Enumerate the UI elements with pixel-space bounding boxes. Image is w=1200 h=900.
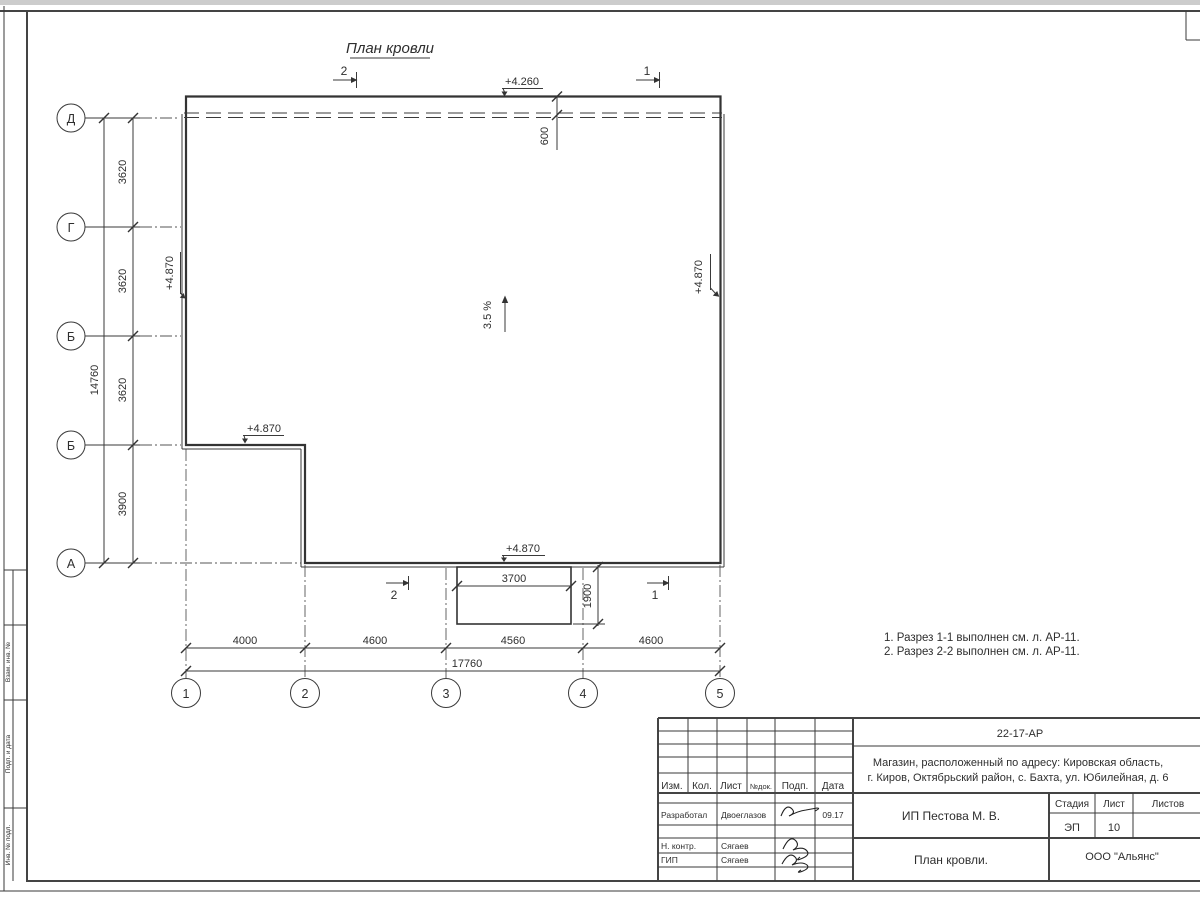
dims-bottom: 4000 4600 4560 4600 17760: [181, 635, 725, 676]
corner-stamp-box: [1186, 11, 1200, 40]
dim-overhang: 600: [539, 92, 562, 151]
title-block: Изм. Кол. Лист №док. Подп. Дата Разработ…: [658, 718, 1200, 881]
tb-name-2: Сягаев: [721, 855, 749, 865]
axis-label-d: Д: [67, 112, 76, 126]
drawing-title: План кровли: [346, 40, 435, 58]
dim-canopy-width: 3700: [502, 573, 526, 585]
dim-bottom-1: 4000: [233, 635, 257, 647]
svg-text:+4.870: +4.870: [693, 260, 705, 294]
notes: 1. Разрез 1-1 выполнен см. л. АР-11. 2. …: [884, 632, 1080, 658]
elevation-right: +4.870: [693, 254, 719, 297]
axis-circles-bottom: 1 2 3 4 5: [172, 679, 735, 708]
canopy: 3700 1900: [452, 562, 605, 629]
axis-label-1: 1: [183, 687, 190, 701]
section-marker-2-top: 2: [333, 64, 358, 88]
roof-outline: [182, 97, 724, 568]
svg-text:+4.870: +4.870: [506, 543, 540, 555]
tb-col-data: Дата: [822, 781, 845, 792]
tb-role-0: Разработал: [661, 810, 707, 820]
note-2: 2. Разрез 2-2 выполнен см. л. АР-11.: [884, 646, 1080, 658]
dim-left-1: 3620: [117, 160, 129, 184]
axis-label-5: 5: [717, 687, 724, 701]
tb-address-2: г. Киров, Октябрьский район, с. Бахта, у…: [868, 772, 1169, 784]
tb-sheet-title: План кровли.: [914, 853, 988, 867]
dim-left-3: 3620: [117, 378, 129, 402]
frame-label-vzam: Взам. инв. №: [5, 642, 12, 682]
tb-sheets-label: Листов: [1152, 799, 1185, 810]
axis-label-b1: Б: [67, 330, 75, 344]
dim-left-4: 3900: [117, 492, 129, 516]
svg-text:1: 1: [652, 588, 659, 602]
svg-text:2: 2: [341, 64, 348, 78]
axis-label-g: Г: [68, 221, 75, 235]
section-marker-1-bottom: 1: [647, 576, 670, 602]
tb-role-1: Н. контр.: [661, 841, 696, 851]
drawing-sheet: Взам. инв. № Подп. и дата Инв. № подл. П…: [0, 0, 1200, 900]
axis-label-3: 3: [443, 687, 450, 701]
svg-text:+4.870: +4.870: [164, 256, 176, 290]
tb-stage-value: ЭП: [1064, 822, 1080, 834]
roof-plan-canvas: Взам. инв. № Подп. и дата Инв. № подл. П…: [0, 0, 1200, 900]
svg-text:2: 2: [391, 588, 398, 602]
slope-annotation: 3.5 %: [482, 296, 508, 333]
dim-bottom-4: 4600: [639, 635, 663, 647]
svg-text:+4.260: +4.260: [505, 76, 539, 88]
axis-label-2: 2: [302, 687, 309, 701]
elevation-notch: +4.870: [242, 423, 284, 444]
tb-col-podp: Подп.: [782, 781, 809, 792]
axis-label-b2: Б: [67, 439, 75, 453]
page-title: План кровли: [346, 40, 435, 57]
tb-col-list: Лист: [720, 781, 742, 792]
axis-label-a: А: [67, 557, 76, 571]
tb-company: ООО "Альянс": [1085, 851, 1159, 863]
tb-col-kol: Кол.: [692, 781, 712, 792]
elevation-bottom: +4.870: [501, 543, 545, 562]
svg-text:+4.870: +4.870: [247, 423, 281, 435]
tb-name-0: Двоеглазов: [721, 810, 767, 820]
dim-canopy-depth: 1900: [582, 584, 594, 608]
dim-bottom-2: 4600: [363, 635, 387, 647]
frame-label-inv: Инв. № подл.: [5, 825, 12, 866]
dims-left: 14760 3620 3620 3620 3900: [89, 113, 138, 568]
tb-address-1: Магазин, расположенный по адресу: Кировс…: [873, 757, 1163, 769]
tb-col-doc: №док.: [750, 782, 772, 791]
tb-stage-label: Стадия: [1055, 799, 1089, 810]
axis-label-4: 4: [580, 687, 587, 701]
svg-text:1: 1: [644, 64, 651, 78]
left-margin-cells: Взам. инв. № Подп. и дата Инв. № подл.: [4, 570, 27, 881]
elevation-top: +4.260: [502, 76, 544, 97]
frame-label-podp: Подп. и дата: [5, 734, 12, 773]
axis-lines: [85, 118, 720, 679]
dim-left-total: 14760: [89, 365, 101, 396]
dim-bottom-3: 4560: [501, 635, 525, 647]
tb-col-izm: Изм.: [661, 781, 682, 792]
tb-doc-number: 22-17-АР: [997, 728, 1043, 740]
tb-date-0: 09.17: [822, 810, 844, 820]
section-marker-2-bottom: 2: [386, 576, 410, 602]
dim-overhang-value: 600: [539, 127, 551, 145]
tb-client: ИП Пестова М. В.: [902, 809, 1000, 823]
tb-sheet-label: Лист: [1103, 799, 1125, 810]
section-marker-1-top: 1: [636, 64, 661, 88]
signatures: [781, 807, 819, 872]
slope-label: 3.5 %: [482, 301, 494, 329]
tb-role-2: ГИП: [661, 855, 678, 865]
axis-circles-left: Д Г Б Б А: [57, 104, 85, 577]
tb-name-1: Сягаев: [721, 841, 749, 851]
dim-left-2: 3620: [117, 269, 129, 293]
note-1: 1. Разрез 1-1 выполнен см. л. АР-11.: [884, 632, 1080, 644]
dim-bottom-total: 17760: [452, 658, 483, 670]
tb-sheet-value: 10: [1108, 822, 1120, 834]
